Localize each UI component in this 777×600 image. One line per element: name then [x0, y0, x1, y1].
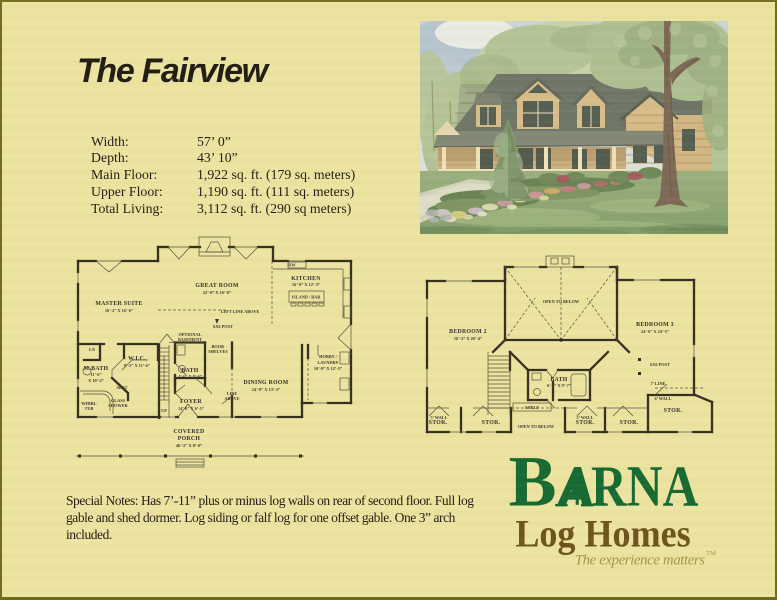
svg-text:FOYER: FOYER	[180, 399, 202, 405]
svg-text:UP: UP	[161, 408, 167, 413]
svg-text:The experience matters: The experience matters	[575, 553, 706, 569]
svg-text:LAUNDRY: LAUNDRY	[317, 360, 339, 365]
svg-text:10’-9” X 12’-3”: 10’-9” X 12’-3”	[314, 366, 342, 371]
svg-text:5’ WALL: 5’ WALL	[577, 415, 594, 420]
svg-text:RNA: RNA	[591, 453, 698, 518]
svg-text:6X6 POST: 6X6 POST	[213, 324, 233, 329]
svg-text:OPEN TO BELOW: OPEN TO BELOW	[518, 424, 555, 429]
svg-text:B: B	[509, 448, 557, 521]
svg-text:SEAT: SEAT	[117, 385, 128, 390]
svg-text:BEDROOM 2: BEDROOM 2	[449, 329, 487, 335]
svg-text:4’-6” X 8’-6”: 4’-6” X 8’-6”	[178, 374, 202, 379]
svg-text:7’ LINE: 7’ LINE	[651, 381, 666, 386]
svg-text:6’ WALL: 6’ WALL	[655, 396, 672, 401]
svg-text:22’-0” X 16’-0”: 22’-0” X 16’-0”	[203, 290, 231, 295]
svg-text:16’-0” X 12’-3”: 16’-0” X 12’-3”	[292, 282, 320, 287]
svg-text:OPEN TO BELOW: OPEN TO BELOW	[543, 299, 580, 304]
svg-text:16’-2” X 26’-4”: 16’-2” X 26’-4”	[454, 336, 482, 341]
svg-text:5’ WALL: 5’ WALL	[431, 415, 448, 420]
svg-text:ISLAND / BAR: ISLAND / BAR	[292, 295, 322, 300]
svg-text:HOBBY /: HOBBY /	[319, 354, 337, 359]
svg-text:LEFT LINE ABOVE: LEFT LINE ABOVE	[221, 309, 260, 314]
svg-text:BEDROOM 3: BEDROOM 3	[636, 322, 674, 328]
svg-text:14’-6” X 6’-5”: 14’-6” X 6’-5”	[178, 406, 204, 411]
svg-text:STOR.: STOR.	[620, 420, 639, 426]
svg-text:W.I.C.: W.I.C.	[128, 356, 146, 362]
svg-text:DINING ROOM: DINING ROOM	[243, 380, 288, 386]
svg-text:COVERED: COVERED	[173, 429, 204, 435]
svg-text:STOR.: STOR.	[576, 420, 595, 426]
svg-text:SHELVES: SHELVES	[208, 349, 228, 354]
svg-text:Log Homes: Log Homes	[515, 513, 690, 556]
svg-text:ABOVE: ABOVE	[224, 396, 239, 401]
svg-text:TM: TM	[706, 550, 716, 557]
svg-text:24’-6” X 24’-5”: 24’-6” X 24’-5”	[641, 329, 669, 334]
svg-text:DW: DW	[288, 263, 296, 268]
svg-text:6’-0” X 9’-7”: 6’-0” X 9’-7”	[547, 383, 571, 388]
svg-text:X 10’-2”: X 10’-2”	[88, 378, 104, 383]
svg-text:SHELF: SHELF	[525, 405, 539, 410]
svg-text:6X6 POST: 6X6 POST	[650, 362, 670, 367]
svg-text:8’-2” X 11’-6”: 8’-2” X 11’-6”	[124, 363, 150, 368]
svg-text:16’-2” X 16’-6”: 16’-2” X 16’-6”	[105, 308, 133, 313]
svg-text:PORCH: PORCH	[178, 436, 201, 442]
svg-text:TUB: TUB	[85, 406, 94, 411]
svg-text:SHOWER: SHOWER	[108, 403, 128, 408]
svg-text:14’-8” X 13’-3”: 14’-8” X 13’-3”	[252, 387, 280, 392]
svg-text:STOR.: STOR.	[482, 420, 501, 426]
svg-text:11’-6”: 11’-6”	[90, 372, 101, 377]
svg-text:LN: LN	[89, 347, 96, 352]
svg-text:MASTER SUITE: MASTER SUITE	[95, 301, 142, 307]
svg-text:GREAT ROOM: GREAT ROOM	[195, 283, 238, 289]
svg-text:STOR.: STOR.	[429, 420, 448, 426]
svg-text:46’-2” X 8’-0”: 46’-2” X 8’-0”	[176, 443, 202, 448]
svg-text:STOR.: STOR.	[664, 408, 683, 414]
svg-text:BASEMENT: BASEMENT	[178, 337, 202, 342]
